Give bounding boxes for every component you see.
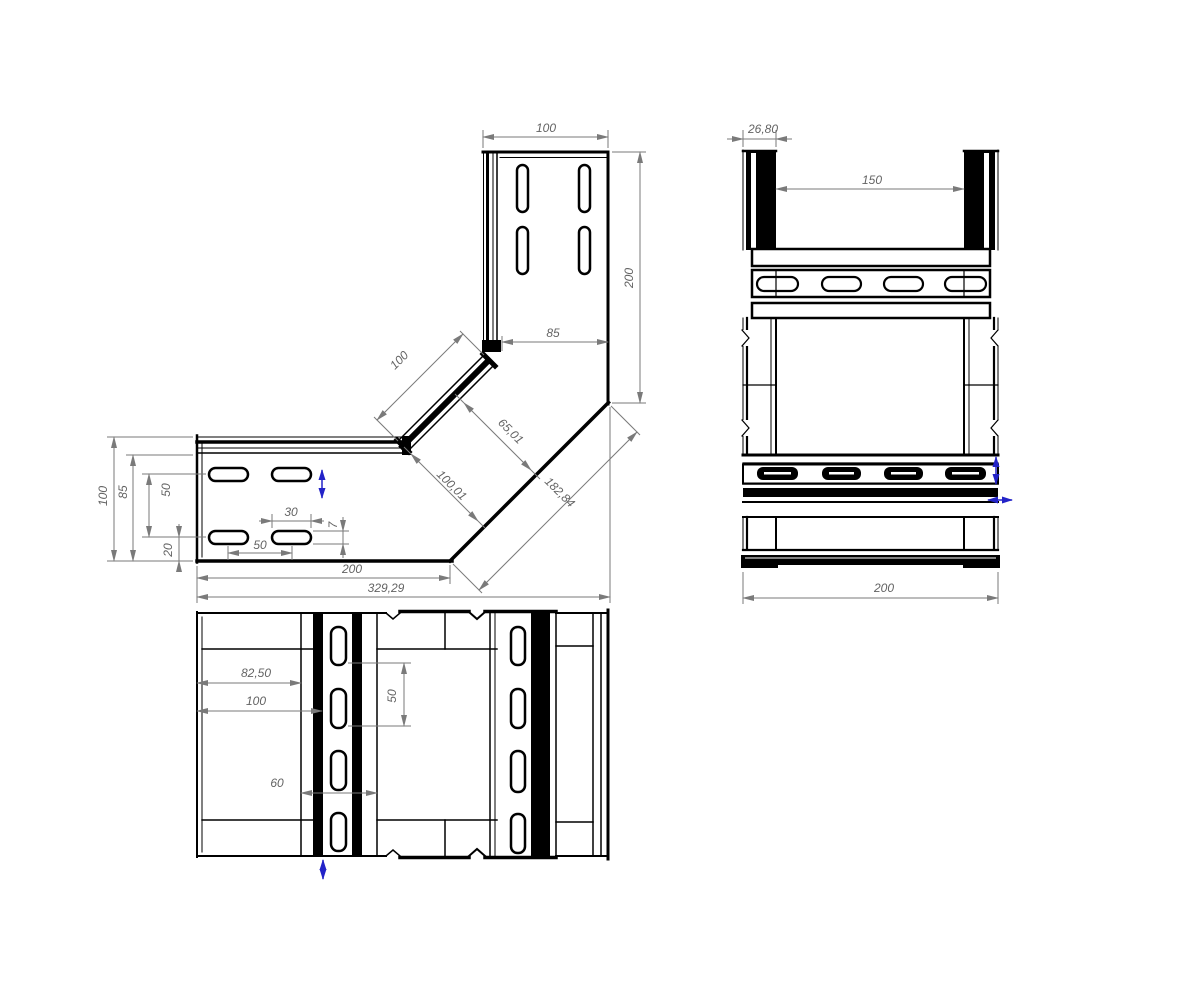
dimension-label: 82,50 [241, 666, 271, 680]
top-view-dimensions: 82,50 100 50 60 [197, 663, 411, 793]
dimension-label: 65,01 [495, 416, 526, 447]
slot-pattern-vertical-arm [517, 165, 590, 274]
dimension-label: 100 [246, 694, 266, 708]
dimension-label: 30 [284, 505, 298, 519]
dimension-label: 100 [536, 121, 556, 135]
dimension-label: 100 [96, 486, 110, 506]
dimension-label: 20 [161, 543, 175, 558]
front-view: 100 200 85 100 65,01 100,01 [96, 121, 646, 603]
side-view: 26,80 150 200 [727, 122, 1012, 604]
dimension-label: 182,84 [542, 474, 578, 510]
dimension-label: 85 [116, 485, 130, 499]
rail-joint-notches [740, 330, 1001, 436]
flange-foot [482, 340, 501, 352]
front-view-dimensions: 100 200 85 100 65,01 100,01 [96, 121, 646, 603]
dimension-label: 50 [385, 689, 399, 703]
joint-band-right [490, 613, 550, 856]
dimension-label: 200 [622, 268, 636, 289]
slot-pattern-lower-band [757, 467, 986, 480]
dimension-label: 150 [862, 173, 882, 187]
dimension-label: 85 [546, 326, 560, 340]
dimension-label: 60 [270, 776, 284, 790]
diagonal-flange-band [397, 354, 495, 452]
dimension-label: 26,80 [747, 122, 778, 136]
dimension-label: 200 [341, 562, 362, 576]
dimension-label: 200 [873, 581, 894, 595]
top-view: 82,50 100 50 60 [197, 610, 608, 879]
slot-pattern-upper-band [757, 271, 986, 296]
technical-drawing-canvas: 100 200 85 100 65,01 100,01 [0, 0, 1200, 1000]
dimension-label: 100,01 [434, 467, 470, 503]
drawing-page: 100 200 85 100 65,01 100,01 [0, 0, 1200, 1000]
dimension-label: 50 [159, 483, 173, 497]
dimension-label: 7 [326, 520, 340, 528]
dimension-label: 329,29 [368, 581, 405, 595]
dimension-label: 50 [253, 538, 267, 552]
dimension-label: 100 [387, 348, 411, 372]
joint-band-left [313, 613, 362, 856]
